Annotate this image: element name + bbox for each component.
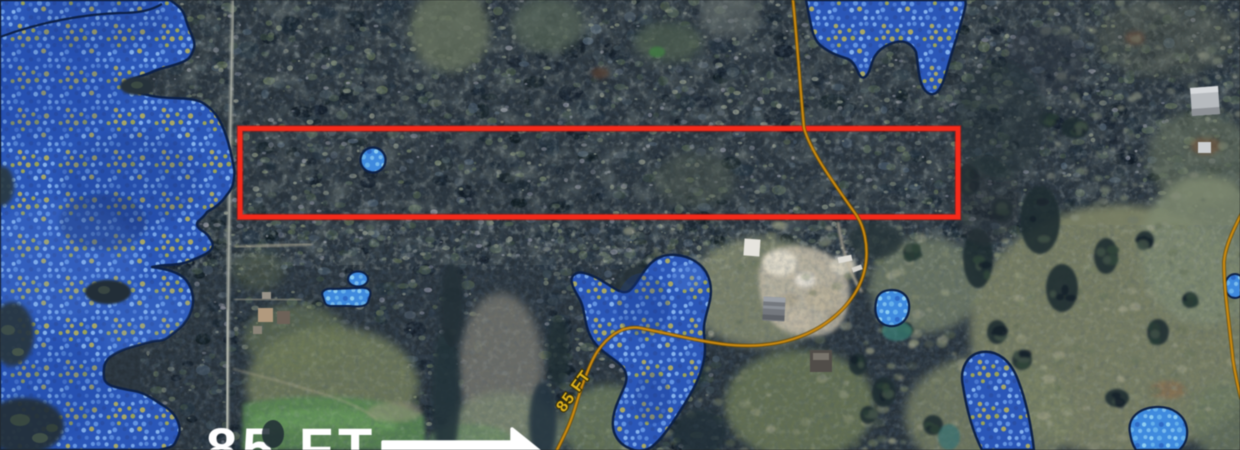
svg-text:85 FT: 85 FT bbox=[206, 416, 377, 450]
